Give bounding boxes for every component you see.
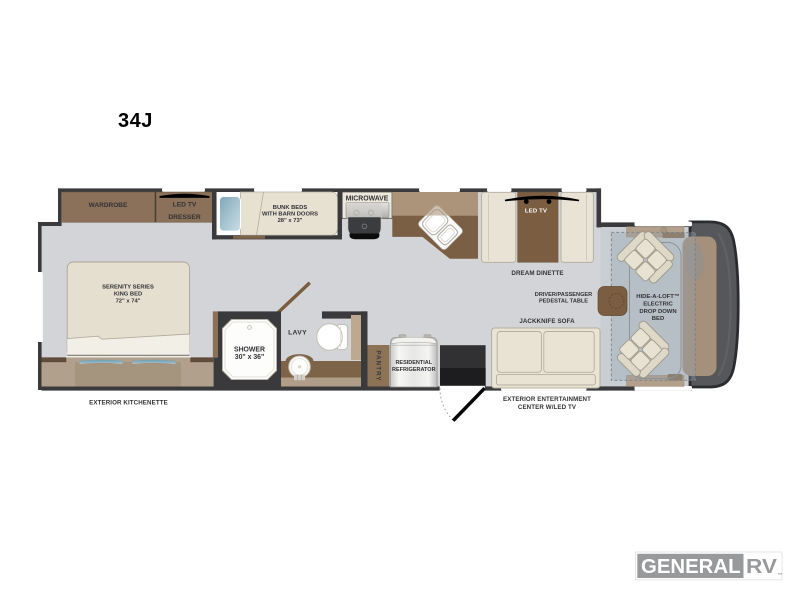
svg-text:WITH BARN DOORS: WITH BARN DOORS [262,211,318,217]
svg-text:JACKKNIFE SOFA: JACKKNIFE SOFA [519,318,575,325]
svg-text:WARDROBE: WARDROBE [89,202,128,209]
svg-text:LED TV: LED TV [525,209,547,215]
svg-text:LAVY: LAVY [288,330,307,337]
svg-text:DRESSER: DRESSER [168,214,201,221]
svg-text:BUNK BEDS: BUNK BEDS [273,205,308,211]
svg-text:MICROWAVE: MICROWAVE [346,196,389,203]
svg-text:DRIVER/PASSENGER: DRIVER/PASSENGER [535,292,592,298]
svg-text:KING BED: KING BED [114,292,142,298]
svg-text:DREAM DINETTE: DREAM DINETTE [511,270,563,277]
svg-text:LED TV: LED TV [173,202,197,209]
svg-text:™: ™ [778,573,783,579]
svg-text:HIDE-A-LOFT™: HIDE-A-LOFT™ [636,293,680,300]
svg-text:ELECTRIC: ELECTRIC [643,302,673,308]
svg-text:EXTERIOR ENTERTAINMENT: EXTERIOR ENTERTAINMENT [503,396,591,403]
svg-text:SERENITY SERIES: SERENITY SERIES [102,284,154,290]
svg-text:30" x 36": 30" x 36" [235,354,265,361]
svg-text:PEDESTAL TABLE: PEDESTAL TABLE [539,298,588,304]
svg-text:SHOWER: SHOWER [234,347,265,354]
svg-text:28" x 73": 28" x 73" [278,218,303,224]
svg-text:72" x 74": 72" x 74" [116,299,141,305]
svg-text:RESIDENTIAL: RESIDENTIAL [395,360,432,366]
svg-text:EXTERIOR KITCHENETTE: EXTERIOR KITCHENETTE [89,399,168,406]
svg-text:REFRIGERATOR: REFRIGERATOR [392,367,436,373]
svg-text:CENTER W/LED TV: CENTER W/LED TV [518,404,577,411]
svg-text:BED: BED [652,316,664,322]
svg-text:RV: RV [746,555,777,578]
svg-text:34J: 34J [118,110,153,132]
svg-text:GENERAL: GENERAL [641,555,741,578]
svg-text:PANTRY: PANTRY [375,350,382,381]
svg-text:DROP DOWN: DROP DOWN [639,309,676,315]
